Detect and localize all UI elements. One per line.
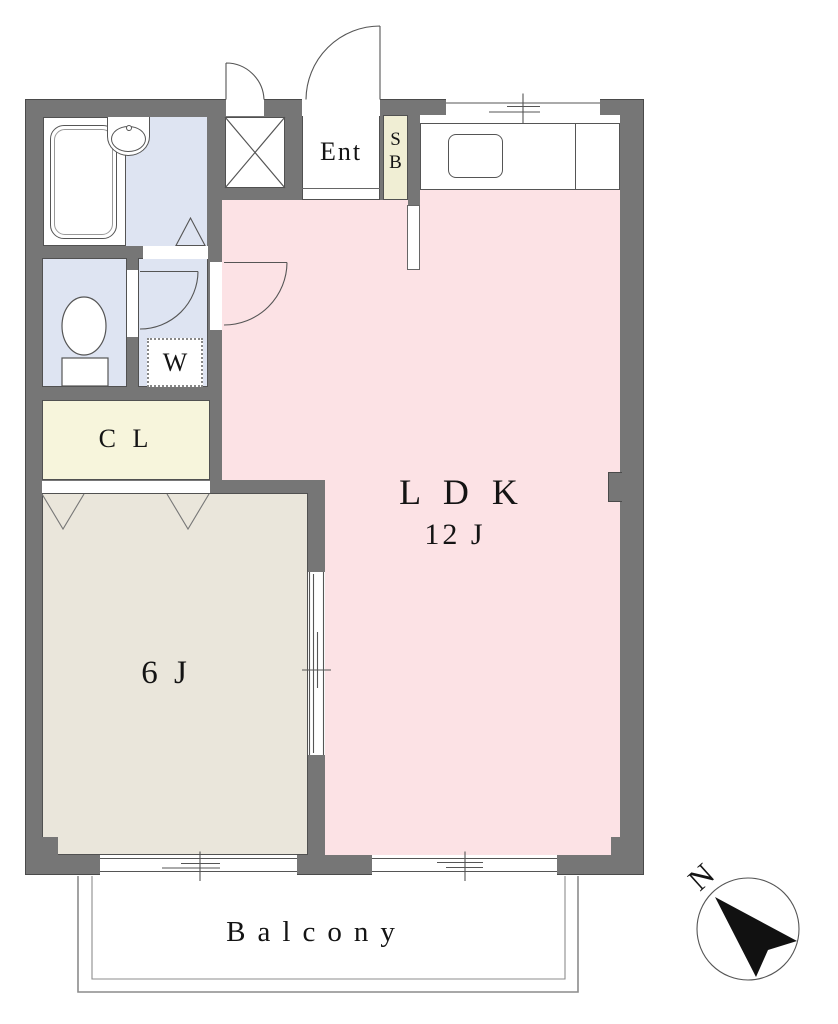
washer-label: W	[147, 349, 203, 379]
sliding-door-opening	[308, 572, 325, 755]
toilet-door-opening	[127, 270, 138, 337]
wall-stub-kitchen	[408, 115, 420, 205]
bedroom-balcony-window	[100, 855, 297, 875]
closet-opening	[42, 481, 210, 493]
wall-pilaster	[608, 472, 622, 502]
entrance-door-arc	[306, 26, 380, 100]
compass-north-label: N	[675, 851, 729, 905]
bedroom-label: 6 J	[33, 655, 299, 699]
shoebox-letter-s: S	[383, 130, 408, 154]
storage-shaft	[225, 117, 285, 188]
floor-plan: Ent S B W C L L D K 12 J 6 J Balcony N	[0, 0, 838, 1024]
storage-door-arc	[226, 63, 264, 100]
entrance-door-opening	[302, 99, 380, 116]
compass-circle	[697, 878, 799, 980]
balcony-label: Balcony	[78, 917, 555, 953]
entrance-label: Ent	[302, 138, 380, 168]
ldk-size-label: 12 J	[315, 518, 595, 556]
wall-notch-left	[42, 837, 58, 855]
ldk-door-opening	[210, 262, 222, 330]
kitchen-sink	[448, 134, 503, 178]
faucet-icon	[126, 125, 132, 131]
ldk-floor-upper	[222, 200, 620, 480]
counter-divider-line	[575, 123, 576, 190]
compass-north-arrow-icon	[715, 897, 797, 977]
ldk-balcony-window	[372, 855, 557, 875]
toilet-room-floor	[42, 258, 127, 387]
kitchen-window	[446, 99, 600, 116]
bathtub-inner-line	[54, 129, 113, 235]
storage-door-opening	[226, 99, 264, 116]
ldk-label: L D K	[322, 473, 602, 515]
entrance-threshold-line	[302, 188, 380, 189]
compass	[697, 878, 799, 980]
shoebox-letter-b: B	[383, 153, 408, 177]
bathroom-door-opening	[143, 246, 208, 259]
kitchen-partition	[407, 205, 420, 270]
closet-label: C L	[42, 425, 210, 457]
wall-notch-right	[611, 837, 622, 855]
ldk-floor-kitchen-strip	[420, 190, 620, 200]
